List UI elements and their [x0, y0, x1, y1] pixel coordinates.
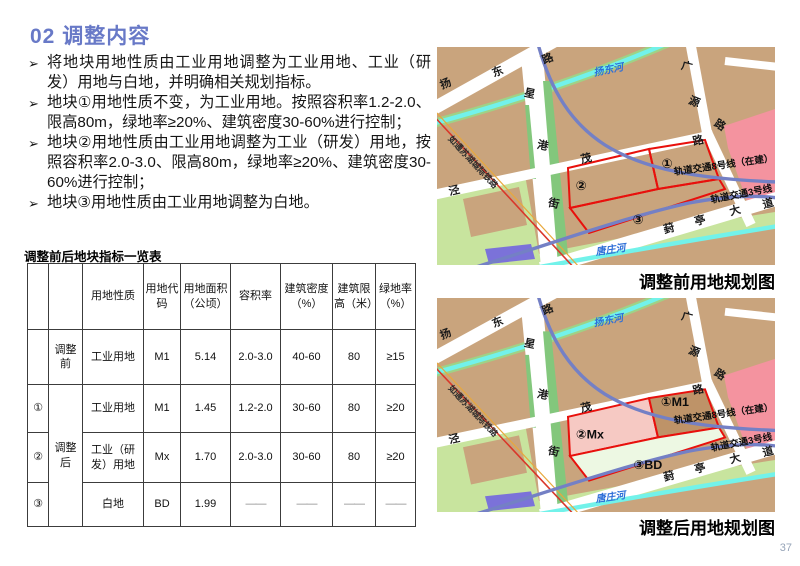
cell-far: ——: [231, 483, 281, 527]
cell-code: BD: [144, 483, 181, 527]
cell-density: ——: [281, 483, 333, 527]
bullet-item: ➢ 将地块用地性质由工业用地调整为工业用地、工业（研发）用地与白地，并明确相关规…: [28, 53, 431, 93]
map-caption-before: 调整前用地规划图: [437, 268, 776, 293]
parcel-2-label: ②Mx: [576, 427, 604, 441]
cell-nature: 工业（研发）用地: [83, 433, 144, 483]
cell-green: ≥20: [376, 385, 416, 433]
cell-area: 5.14: [181, 330, 231, 385]
cell-green: ——: [376, 483, 416, 527]
cell-area: 1.99: [181, 483, 231, 527]
cell-id: ②: [28, 433, 49, 483]
indicator-table: 用地性质 用地代码 用地面积（公顷） 容积率 建筑密度（%） 建筑限高（米） 绿…: [27, 263, 416, 527]
parcel-2-label: ②: [575, 178, 586, 193]
slide: { "title": "02 调整内容", "bullet_marker": "…: [0, 0, 800, 566]
cell-phase-merged: 调整后: [49, 385, 83, 527]
bullet-marker-icon: ➢: [28, 53, 47, 93]
cell-green: ≥15: [376, 330, 416, 385]
header-cell: 绿地率（%）: [376, 264, 416, 330]
cell-nature: 工业用地: [83, 385, 144, 433]
header-cell: [49, 264, 83, 330]
bullet-text: 地块③用地性质由工业用地调整为白地。: [47, 193, 431, 214]
cell-nature: 工业用地: [83, 330, 144, 385]
parcel-1-label: ①: [661, 156, 672, 171]
cell-green: ≥20: [376, 433, 416, 483]
cell-nature: 白地: [83, 483, 144, 527]
table-row: ③ 白地 BD 1.99 —— —— —— ——: [28, 483, 416, 527]
bullet-item: ➢ 地块②用地性质由工业用地调整为工业（研发）用地，按照容积率2.0-3.0、限…: [28, 133, 431, 193]
planning-map-before: ① ② ③: [437, 47, 775, 265]
cell-density: 40-60: [281, 330, 333, 385]
cell-density: 30-60: [281, 385, 333, 433]
map-caption-after: 调整后用地规划图: [437, 514, 776, 539]
header-cell: 容积率: [231, 264, 281, 330]
cell-code: M1: [144, 330, 181, 385]
cell-height: 80: [333, 385, 376, 433]
page-title: 02 调整内容: [30, 20, 150, 50]
bullet-marker-icon: ➢: [28, 93, 47, 133]
cell-id: [28, 330, 49, 385]
planning-map-after: ①M1 ②Mx ③BD: [437, 298, 775, 512]
table-row: ② 工业（研发）用地 Mx 1.70 2.0-3.0 30-60 80 ≥20: [28, 433, 416, 483]
cell-phase: 调整前: [49, 330, 83, 385]
header-cell: 建筑密度（%）: [281, 264, 333, 330]
bullet-list: ➢ 将地块用地性质由工业用地调整为工业用地、工业（研发）用地与白地，并明确相关规…: [28, 53, 431, 214]
parcel-1-label: ①M1: [661, 395, 689, 409]
cell-id: ③: [28, 483, 49, 527]
cell-far: 2.0-3.0: [231, 330, 281, 385]
header-cell: 用地面积（公顷）: [181, 264, 231, 330]
parcel-3-label: ③BD: [634, 458, 663, 472]
header-cell: [28, 264, 49, 330]
cell-height: 80: [333, 330, 376, 385]
cell-height: ——: [333, 483, 376, 527]
maps-column: ① ② ③ 调整前用地规划图 ①M1 ②Mx ③BD 调整后用地规划图: [437, 47, 775, 265]
cell-area: 1.70: [181, 433, 231, 483]
parcel-3-label: ③: [632, 212, 643, 227]
bullet-text: 地块①用地性质不变，为工业用地。按照容积率1.2-2.0、限高80m，绿地率≥2…: [47, 93, 431, 133]
table-row: 调整前 工业用地 M1 5.14 2.0-3.0 40-60 80 ≥15: [28, 330, 416, 385]
header-cell: 用地代码: [144, 264, 181, 330]
map-base: [437, 47, 775, 265]
bullet-marker-icon: ➢: [28, 193, 47, 214]
page-number: 37: [780, 542, 792, 554]
cell-density: 30-60: [281, 433, 333, 483]
bullet-text: 将地块用地性质由工业用地调整为工业用地、工业（研发）用地与白地，并明确相关规划指…: [47, 53, 431, 93]
header-cell: 建筑限高（米）: [333, 264, 376, 330]
map-base: [437, 298, 775, 512]
cell-far: 2.0-3.0: [231, 433, 281, 483]
bullet-marker-icon: ➢: [28, 133, 47, 193]
cell-code: M1: [144, 385, 181, 433]
cell-far: 1.2-2.0: [231, 385, 281, 433]
bullet-item: ➢ 地块③用地性质由工业用地调整为白地。: [28, 193, 431, 214]
table-row: ① 调整后 工业用地 M1 1.45 1.2-2.0 30-60 80 ≥20: [28, 385, 416, 433]
cell-id: ①: [28, 385, 49, 433]
header-cell: 用地性质: [83, 264, 144, 330]
table-header-row: 用地性质 用地代码 用地面积（公顷） 容积率 建筑密度（%） 建筑限高（米） 绿…: [28, 264, 416, 330]
bullet-text: 地块②用地性质由工业用地调整为工业（研发）用地，按照容积率2.0-3.0、限高8…: [47, 133, 431, 193]
cell-area: 1.45: [181, 385, 231, 433]
cell-height: 80: [333, 433, 376, 483]
cell-code: Mx: [144, 433, 181, 483]
bullet-item: ➢ 地块①用地性质不变，为工业用地。按照容积率1.2-2.0、限高80m，绿地率…: [28, 93, 431, 133]
